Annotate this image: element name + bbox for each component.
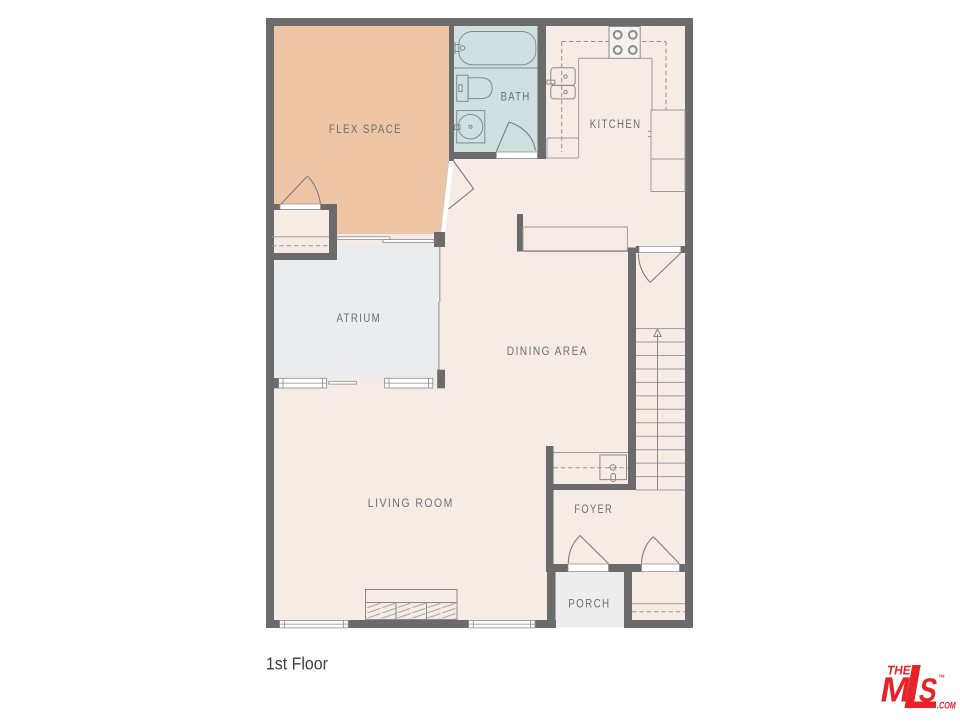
svg-text:FLEX SPACE: FLEX SPACE (329, 124, 402, 136)
svg-text:PORCH: PORCH (568, 599, 610, 611)
svg-text:LIVING ROOM: LIVING ROOM (368, 498, 454, 510)
svg-text:DINING AREA: DINING AREA (507, 346, 588, 358)
svg-text:BATH: BATH (501, 91, 531, 103)
svg-text:FOYER: FOYER (574, 504, 613, 516)
svg-text:1st Floor: 1st Floor (266, 653, 328, 673)
svg-text:KITCHEN: KITCHEN (590, 119, 642, 131)
svg-text:THE: THE (886, 662, 913, 677)
svg-text:.COM: .COM (936, 700, 957, 711)
svg-text:ATRIUM: ATRIUM (337, 313, 382, 325)
